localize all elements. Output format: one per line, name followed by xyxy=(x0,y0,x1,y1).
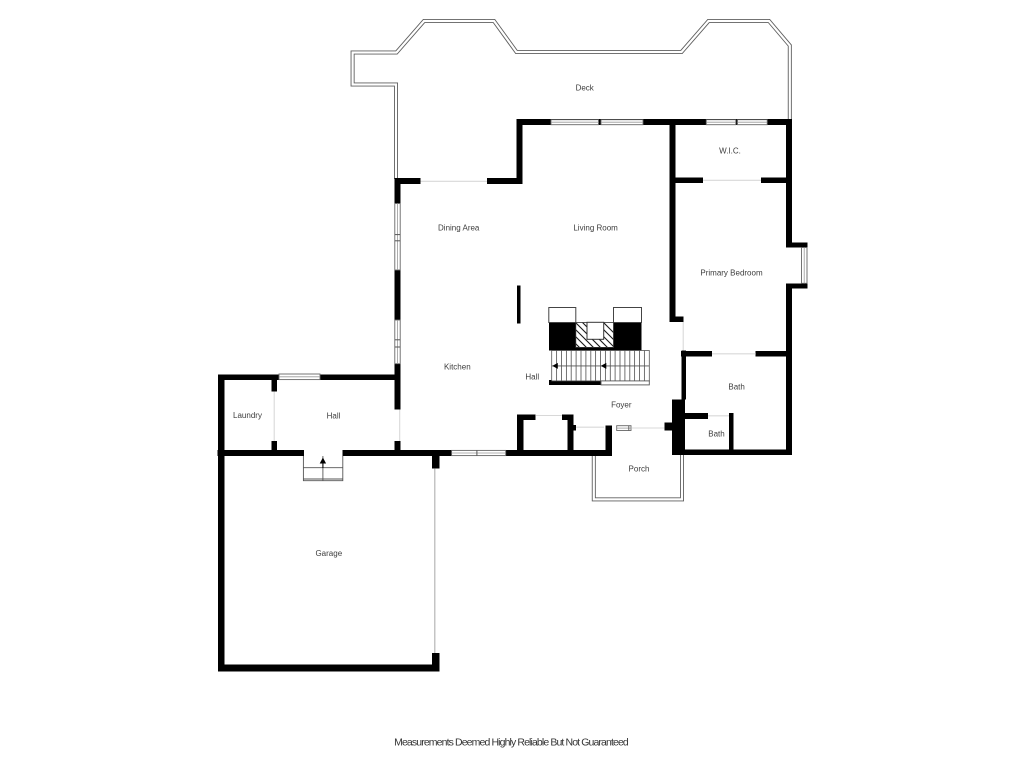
svg-text:Foyer: Foyer xyxy=(611,401,632,410)
svg-text:Bath: Bath xyxy=(728,383,744,392)
svg-text:Measurements Deemed Highly Rel: Measurements Deemed Highly Reliable But … xyxy=(394,737,629,749)
svg-text:Living Room: Living Room xyxy=(573,224,618,233)
svg-text:Bath: Bath xyxy=(708,430,724,439)
svg-text:Garage: Garage xyxy=(315,549,342,558)
svg-text:Laundry: Laundry xyxy=(233,411,262,420)
svg-text:Hall: Hall xyxy=(327,412,341,421)
svg-text:W.I.C.: W.I.C. xyxy=(719,147,741,156)
svg-text:Kitchen: Kitchen xyxy=(444,363,471,372)
svg-text:Porch: Porch xyxy=(629,465,650,474)
svg-text:Hall: Hall xyxy=(525,373,539,382)
svg-text:Primary Bedroom: Primary Bedroom xyxy=(700,269,763,278)
svg-text:Deck: Deck xyxy=(576,84,595,93)
svg-text:Dining Area: Dining Area xyxy=(438,224,480,233)
